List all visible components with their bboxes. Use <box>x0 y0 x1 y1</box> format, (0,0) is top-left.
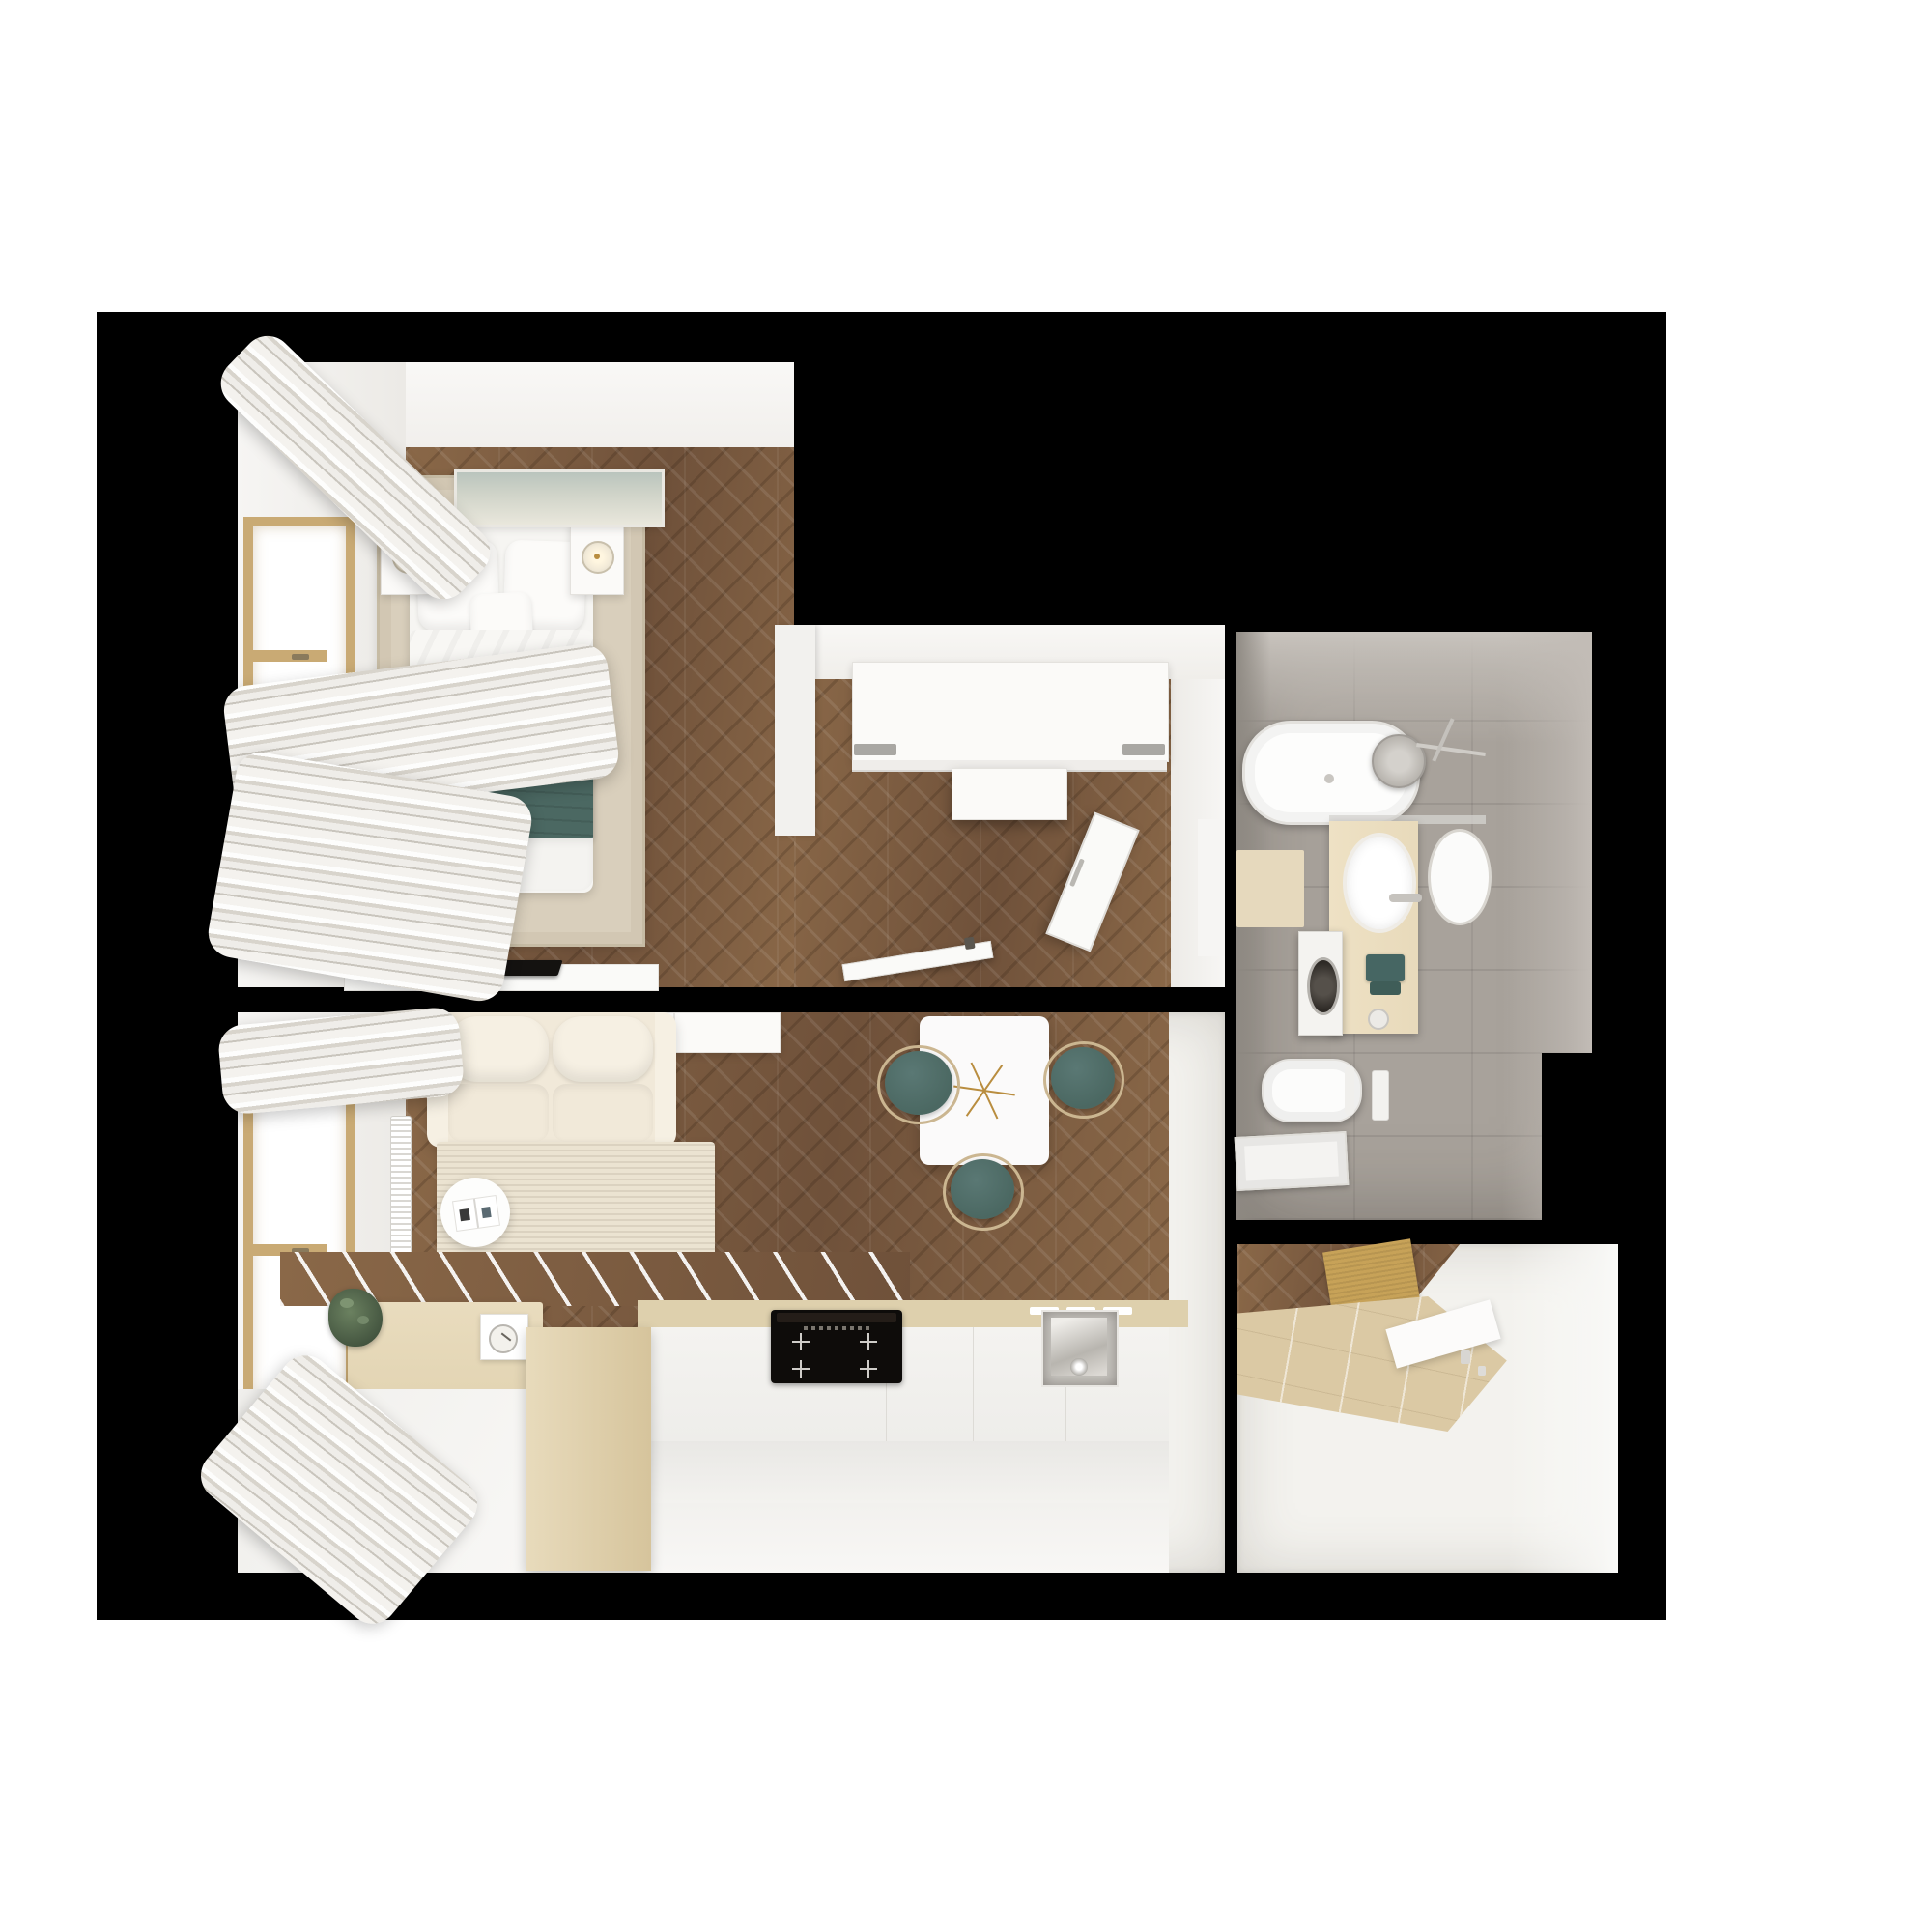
entrance-doorway <box>1198 819 1225 956</box>
bedroom-hallway-wall-jamb <box>775 625 815 836</box>
wardrobe-handle-right <box>1122 744 1165 755</box>
bedroom-window-rail <box>253 650 327 662</box>
dining-chair-left <box>885 1051 952 1115</box>
toilet-tank-edge <box>1345 1066 1354 1115</box>
entry-wall-outlet-1 <box>1461 1350 1470 1364</box>
counter-seam-2 <box>973 1327 974 1441</box>
teal-towel-1 <box>1366 954 1405 981</box>
plant-leaf-highlight <box>340 1298 354 1308</box>
kitchen-island <box>526 1327 651 1571</box>
floor-plan-scene <box>0 0 1932 1932</box>
tub-drain <box>1324 774 1334 783</box>
book-spine <box>473 1199 479 1228</box>
hallway-wardrobe <box>852 662 1169 762</box>
interior-door-handle <box>964 937 976 950</box>
kitchen-counter-front <box>638 1441 1169 1503</box>
kitchen-sink <box>1041 1310 1119 1387</box>
bathroom-step-notch <box>1542 1053 1592 1221</box>
dining-chair-bottom <box>951 1159 1014 1219</box>
sconce-lamp-right-icon <box>582 541 614 574</box>
entry-wall-outlet-2 <box>1478 1366 1486 1376</box>
burner-cross-2v <box>867 1333 869 1350</box>
entry-right-wall <box>1507 1244 1618 1573</box>
cooktop-vent-strip <box>777 1313 896 1322</box>
potted-plant-icon <box>328 1289 383 1347</box>
burner-cross-3v <box>800 1360 802 1378</box>
clock-book-decor <box>480 1314 528 1360</box>
bath-mat <box>1236 850 1304 927</box>
vanity-basin <box>1343 833 1416 933</box>
sofa-seat-cushion-left <box>448 1084 549 1142</box>
burner-cross-4v <box>867 1360 869 1378</box>
burner-cross-1v <box>800 1333 802 1350</box>
washer-door <box>1307 957 1340 1015</box>
sconce-right-gold-dot <box>594 554 600 559</box>
sink-faucet <box>1070 1358 1088 1376</box>
washing-machine <box>1298 931 1343 1036</box>
book-print-right <box>481 1207 491 1218</box>
shower-tray <box>1235 1131 1350 1191</box>
mirrored-basin <box>1428 829 1492 925</box>
sofa-seat-cushion-right <box>553 1084 653 1142</box>
book-print-left <box>459 1208 470 1221</box>
induction-cooktop <box>771 1310 902 1383</box>
plant-leaf-highlight-2 <box>357 1316 369 1324</box>
teal-towel-2 <box>1370 981 1401 995</box>
dining-chair-right <box>1051 1047 1115 1109</box>
toilet-flush-plate <box>1372 1070 1389 1121</box>
sofa-back-cushion-right <box>553 1016 653 1082</box>
wardrobe-open-door-panel <box>952 768 1067 820</box>
basin-faucet <box>1389 894 1422 902</box>
soap-dispenser <box>1368 1009 1389 1030</box>
bedroom-window-handle <box>292 654 309 660</box>
wardrobe-handle-left <box>854 744 896 755</box>
sofa-back-cushion-left <box>448 1016 549 1082</box>
decor-clock-face <box>489 1324 518 1353</box>
living-radiator <box>390 1116 412 1264</box>
cooktop-controls <box>804 1326 869 1330</box>
wall-hung-toilet <box>1262 1059 1362 1122</box>
sofa-arm-right <box>655 1012 676 1148</box>
open-book <box>452 1195 500 1232</box>
bedroom-seascape-artwork <box>454 469 665 527</box>
